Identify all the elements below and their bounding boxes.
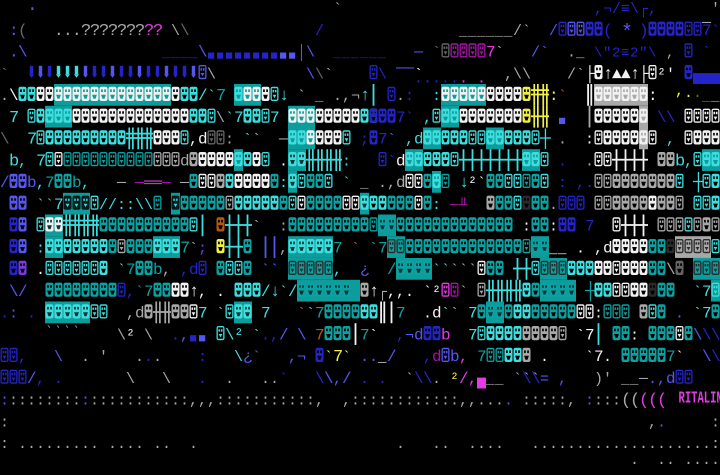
svg-text::: : [432, 393, 441, 410]
svg-text:____: ____ [161, 46, 198, 62]
svg-text:``: `` [432, 262, 450, 279]
svg-text:__: __ [548, 241, 567, 257]
svg-text:.: . [405, 284, 414, 301]
svg-text:,: , [648, 414, 657, 431]
svg-text:.: . [621, 436, 630, 453]
svg-text:,: , [126, 284, 135, 301]
svg-text:': ' [603, 371, 612, 388]
svg-text::: : [198, 349, 207, 366]
svg-text:\: \ [207, 67, 216, 84]
svg-text:,: , [423, 349, 432, 366]
svg-text:.: . [477, 436, 486, 453]
svg-text:\: \ [180, 22, 190, 40]
svg-text:`: ` [333, 1, 342, 18]
svg-text:·: · [684, 88, 693, 105]
svg-text:`: ` [351, 240, 360, 257]
svg-text:,: , [459, 393, 468, 410]
svg-text:\: \ [711, 326, 720, 344]
svg-text::: : [585, 132, 594, 149]
svg-text:.: . [126, 436, 135, 453]
svg-text::: : [36, 393, 45, 410]
svg-text:.: . [549, 197, 558, 214]
svg-text:`: ` [459, 262, 468, 279]
svg-text:_: _ [701, 89, 711, 105]
svg-text:.: . [396, 436, 405, 453]
svg-text::: : [603, 393, 612, 410]
svg-text:`: ` [369, 327, 378, 344]
svg-text:): ) [639, 22, 649, 40]
svg-text:.: . [360, 371, 369, 388]
svg-text:d: d [666, 370, 676, 388]
svg-text:7: 7 [27, 131, 37, 150]
svg-text:↑: ↑ [360, 87, 370, 106]
svg-text::: : [630, 327, 639, 344]
svg-text::: : [360, 393, 369, 410]
svg-text:.: . [261, 327, 270, 344]
svg-text:─: ─ [116, 175, 127, 192]
svg-text:.: . [702, 452, 711, 469]
svg-text:,: , [207, 393, 216, 410]
svg-text:,: , [504, 67, 513, 84]
svg-text:/: / [387, 348, 397, 366]
svg-text:_: _ [359, 176, 369, 192]
svg-text::: : [711, 414, 720, 431]
svg-text:.: . [432, 371, 441, 388]
svg-text:.: . [666, 436, 675, 453]
svg-text:,: , [333, 262, 342, 279]
svg-text::: : [594, 393, 603, 410]
svg-text:\: \ [117, 327, 126, 344]
svg-text:/: / [567, 67, 576, 84]
svg-text:·: · [693, 88, 702, 105]
svg-text:.: . [702, 436, 711, 453]
svg-text:,: , [36, 175, 45, 192]
svg-text:7: 7 [468, 326, 478, 344]
svg-text:": " [639, 46, 647, 62]
svg-text:\: \ [0, 131, 10, 149]
svg-text:\: \ [666, 261, 676, 279]
svg-text:((: (( [621, 392, 639, 411]
svg-text::: : [279, 219, 288, 236]
svg-text:`: ` [207, 88, 216, 105]
svg-text:‵‵‵‵: ‵‵‵‵ [45, 324, 81, 339]
svg-text::: : [135, 393, 144, 410]
svg-text:.: . [585, 175, 594, 192]
svg-text:.: . [54, 436, 63, 453]
svg-text:`: ` [387, 153, 396, 170]
svg-text:.: . [675, 306, 684, 323]
svg-text:`: ` [342, 175, 351, 192]
svg-text::: : [369, 393, 378, 410]
svg-text:.: . [549, 436, 558, 453]
svg-text:\: \ [126, 371, 135, 388]
svg-text:_: _ [575, 46, 585, 62]
svg-text:=: = [540, 371, 549, 388]
svg-text::: : [153, 393, 162, 410]
svg-text:7: 7 [585, 218, 595, 236]
svg-text:.: . [468, 436, 477, 453]
svg-text:\: \ [162, 371, 171, 388]
svg-text:`: ` [387, 132, 396, 149]
svg-text:.: . [63, 436, 72, 453]
svg-text:.: . [189, 436, 198, 453]
svg-text:,: , [558, 371, 567, 388]
svg-text:/: / [342, 370, 352, 388]
svg-text:7: 7 [216, 87, 226, 106]
svg-text::: : [0, 414, 9, 431]
svg-text:d: d [198, 131, 208, 149]
svg-text:_: _ [710, 89, 720, 105]
svg-text:.: . [540, 436, 549, 453]
svg-text:²: ² [657, 67, 666, 84]
svg-text:.: . [27, 0, 38, 16]
svg-text:.: . [495, 436, 504, 453]
svg-text:,: , [396, 284, 405, 301]
svg-text:(: ( [603, 22, 613, 40]
svg-text::: : [0, 393, 9, 410]
svg-text:\: \ [666, 109, 676, 127]
svg-text:.: . [153, 436, 162, 453]
svg-text:/: / [549, 23, 558, 40]
svg-text:,: , [333, 371, 342, 388]
svg-text:d: d [396, 152, 406, 170]
svg-text:_: _ [377, 350, 387, 366]
svg-text:\: \ [378, 67, 387, 84]
svg-text:.: . [135, 349, 144, 366]
svg-text::: : [279, 393, 288, 410]
svg-text:7: 7 [477, 348, 487, 366]
svg-text:.: . [684, 436, 693, 453]
svg-text:,: , [657, 371, 666, 388]
svg-text:¬: ¬ [405, 327, 414, 344]
svg-text:.: . [657, 452, 666, 469]
svg-text:.: . [378, 175, 387, 192]
svg-text:,: , [666, 46, 674, 62]
svg-text::: : [549, 393, 558, 410]
svg-text:,: , [423, 110, 432, 127]
svg-text:²: ² [468, 175, 477, 192]
svg-text::: : [522, 219, 531, 236]
svg-text:/: / [0, 174, 10, 192]
svg-text:.: . [27, 436, 36, 453]
svg-text:.: . [225, 371, 234, 388]
svg-text::: : [612, 393, 621, 410]
svg-text:.: . [558, 153, 567, 170]
svg-text:.: . [576, 240, 585, 257]
svg-text::: : [180, 393, 189, 410]
svg-text:.: . [0, 306, 9, 323]
svg-text:`: ` [342, 349, 351, 366]
svg-text:d: d [414, 131, 424, 149]
svg-text:.: . [153, 349, 162, 366]
svg-text:(: ( [18, 22, 28, 40]
svg-text::: : [450, 393, 459, 410]
svg-text:,: , [468, 393, 477, 410]
svg-text:.: . [711, 452, 720, 469]
svg-text::: : [225, 393, 234, 410]
svg-text:.: . [171, 327, 180, 344]
svg-text:,: , [180, 327, 189, 344]
svg-text:\: \ [594, 46, 602, 62]
svg-text::: : [396, 393, 405, 410]
svg-text:.: . [558, 436, 567, 453]
svg-text:,: , [18, 153, 27, 170]
svg-text:.: . [135, 436, 144, 453]
svg-text:2: 2 [612, 46, 620, 62]
svg-text::: : [117, 393, 126, 410]
svg-text:`: ` [459, 284, 468, 301]
svg-text::: : [387, 393, 396, 410]
svg-text:7: 7 [585, 326, 595, 344]
svg-text:::: :: [117, 197, 135, 214]
svg-text:,: , [468, 371, 477, 388]
svg-text::: : [90, 393, 99, 410]
svg-text:7: 7 [9, 109, 19, 128]
svg-text:.: . [639, 436, 648, 453]
svg-text:\: \ [9, 87, 19, 105]
svg-text::: : [522, 393, 531, 410]
svg-text:``: `` [36, 197, 54, 214]
svg-text:\: \ [630, 1, 639, 18]
svg-text:`: ` [702, 45, 711, 62]
svg-text:7: 7 [270, 109, 280, 127]
svg-text:': ' [99, 349, 108, 366]
svg-text:`: ` [297, 88, 306, 105]
svg-text:7: 7 [261, 305, 271, 323]
svg-text:RITALIN: RITALIN [679, 389, 720, 408]
svg-text:2: 2 [630, 46, 638, 62]
svg-text::: : [405, 393, 414, 410]
svg-text:7: 7 [378, 239, 388, 257]
svg-text:,: , [459, 349, 468, 366]
svg-text:7: 7 [36, 152, 46, 171]
svg-text:???????: ??????? [81, 22, 144, 41]
svg-text:/: / [279, 326, 289, 344]
svg-text::: : [594, 306, 603, 323]
svg-text::: : [288, 393, 297, 410]
svg-text:.: . [648, 436, 657, 453]
svg-text:.: . [81, 349, 90, 366]
svg-text:7: 7 [702, 305, 712, 323]
svg-text:d: d [180, 152, 190, 170]
svg-text:↓: ↓ [279, 87, 289, 106]
svg-text:¿: ¿ [360, 261, 370, 279]
svg-text:├: ├ [639, 65, 649, 84]
svg-text::: : [54, 393, 63, 410]
svg-text:.: . [423, 306, 432, 323]
svg-text:.: . [603, 436, 612, 453]
svg-text:`: ` [450, 262, 459, 279]
svg-text:\: \ [171, 23, 180, 40]
svg-text:`: ` [252, 349, 261, 366]
svg-text:.: . [567, 45, 576, 62]
svg-text::: : [216, 393, 225, 410]
svg-text:.: . [54, 371, 63, 388]
svg-text:`: ` [279, 284, 288, 301]
svg-text:,: , [675, 83, 684, 100]
svg-text:7: 7 [315, 326, 325, 344]
svg-text::: : [144, 393, 153, 410]
svg-text::: : [531, 393, 540, 410]
svg-text:\: \ [144, 327, 153, 344]
svg-text:.: . [378, 371, 387, 388]
svg-text:,: , [270, 327, 279, 344]
svg-text:.: . [612, 436, 621, 453]
svg-text:`: ` [693, 284, 702, 301]
svg-text:.: . [495, 393, 504, 410]
svg-text:\: \ [306, 45, 315, 62]
svg-text:,: , [342, 393, 351, 410]
svg-text:,: , [36, 371, 45, 388]
svg-text:,: , [126, 306, 135, 323]
svg-text:`: ` [711, 23, 720, 40]
svg-text:`: ` [522, 23, 531, 40]
svg-text:7: 7 [234, 109, 244, 127]
svg-text:,: , [198, 284, 207, 301]
svg-text:`: ` [423, 284, 432, 301]
svg-text:`: ` [324, 67, 333, 84]
svg-text:.: . [531, 436, 540, 453]
svg-text:,: , [18, 349, 27, 366]
svg-text:,: , [279, 240, 288, 257]
svg-text:_: _ [314, 89, 324, 105]
svg-text::: : [558, 393, 567, 410]
svg-text:──: ── [395, 61, 415, 78]
svg-text:______: ______ [332, 46, 387, 61]
svg-text:__: __ [620, 372, 639, 388]
svg-text:d: d [414, 326, 424, 344]
svg-text:\: \ [306, 67, 315, 84]
svg-text::: : [27, 393, 36, 410]
svg-text::: : [432, 88, 441, 105]
svg-text:,: , [666, 132, 675, 149]
svg-text:.: . [630, 436, 639, 453]
svg-text:/: / [315, 23, 324, 40]
svg-text:;: ; [360, 132, 369, 149]
svg-text:.: . [279, 153, 288, 170]
svg-text:\: \ [297, 326, 307, 344]
svg-text:`: ` [585, 349, 594, 366]
svg-text:`: ` [297, 306, 306, 323]
svg-text:`: ` [576, 67, 585, 84]
svg-text:─╨: ─╨ [449, 197, 468, 214]
svg-text::: : [441, 393, 450, 410]
svg-text::: : [9, 393, 18, 410]
svg-text:`: ` [369, 240, 378, 257]
svg-text::: : [243, 393, 252, 410]
svg-text:.: . [45, 436, 54, 453]
svg-text:.: . [477, 393, 486, 410]
svg-text:¬: ¬ [603, 1, 612, 18]
svg-text://: // [99, 197, 117, 214]
svg-text:7: 7 [702, 283, 712, 301]
svg-text:`: ` [225, 110, 234, 127]
svg-text:.: . [90, 436, 99, 453]
svg-text:.: . [693, 436, 702, 453]
svg-text:¬: ¬ [351, 88, 360, 105]
svg-text:,: , [594, 240, 603, 257]
svg-text::: : [261, 393, 270, 410]
svg-text:d: d [432, 348, 442, 366]
svg-text:.: . [567, 436, 576, 453]
svg-text:²: ² [450, 371, 459, 388]
svg-text:.: . [81, 436, 90, 453]
svg-text:─: ─ [278, 132, 289, 149]
svg-text:.: . [198, 371, 207, 388]
svg-text:/: / [531, 45, 540, 62]
svg-text::: : [279, 175, 288, 192]
svg-text:\: \ [711, 348, 720, 366]
svg-text:.: . [108, 436, 117, 453]
svg-text:.: . [360, 349, 369, 366]
svg-text:\: \ [315, 67, 324, 84]
svg-text:7: 7 [54, 196, 64, 214]
svg-text:─: ─ [701, 15, 712, 32]
svg-text:,: , [387, 175, 396, 192]
svg-text:`: ` [117, 262, 126, 279]
svg-text::: : [72, 393, 81, 410]
svg-text::: : [297, 393, 306, 410]
svg-text:┼: ┼ [692, 172, 704, 193]
svg-text:`: ` [0, 67, 9, 84]
svg-text:``: `` [441, 306, 459, 323]
svg-text:/: / [18, 283, 28, 301]
svg-text:.: . [666, 452, 675, 469]
svg-text:.: . [585, 153, 594, 170]
svg-text:`: ` [495, 45, 504, 62]
svg-text::: : [270, 393, 279, 410]
svg-text::: : [108, 393, 117, 410]
svg-text:.: . [648, 371, 657, 388]
svg-text:.: . [675, 436, 684, 453]
svg-text:,: , [396, 327, 405, 344]
svg-text:.: . [144, 349, 153, 366]
svg-text:7: 7 [45, 174, 55, 192]
svg-text::: : [81, 393, 90, 410]
svg-text:`: ` [135, 284, 144, 301]
svg-text::: : [648, 87, 658, 105]
svg-text:??: ?? [144, 22, 162, 41]
svg-text:.: . [333, 88, 342, 105]
svg-text:,: , [567, 393, 576, 410]
svg-text:7: 7 [144, 283, 154, 301]
svg-text:¬: ¬ [297, 349, 306, 366]
svg-text::: : [126, 393, 135, 410]
svg-text:`: ` [558, 88, 567, 105]
svg-text:.: . [684, 452, 693, 469]
svg-text:≡: ≡ [621, 46, 629, 62]
svg-text::: : [351, 393, 360, 410]
svg-text:.: . [18, 436, 27, 453]
svg-text::: : [171, 393, 180, 410]
svg-text:d: d [135, 305, 145, 323]
svg-text:d: d [396, 174, 406, 192]
svg-text:`: ` [576, 327, 585, 344]
svg-text:²: ² [432, 284, 441, 301]
svg-text:': ' [666, 67, 675, 84]
svg-text::: : [549, 219, 558, 236]
svg-text:,: , [594, 1, 603, 18]
svg-text:.: . [432, 436, 441, 453]
svg-text:/: / [288, 283, 298, 301]
svg-text:.: . [216, 284, 225, 301]
svg-text::: : [252, 393, 261, 410]
svg-text:/: / [387, 261, 397, 279]
svg-text:.: . [585, 436, 594, 453]
svg-text::: : [162, 393, 171, 410]
svg-text::: : [558, 175, 567, 192]
svg-text:.: . [576, 436, 585, 453]
